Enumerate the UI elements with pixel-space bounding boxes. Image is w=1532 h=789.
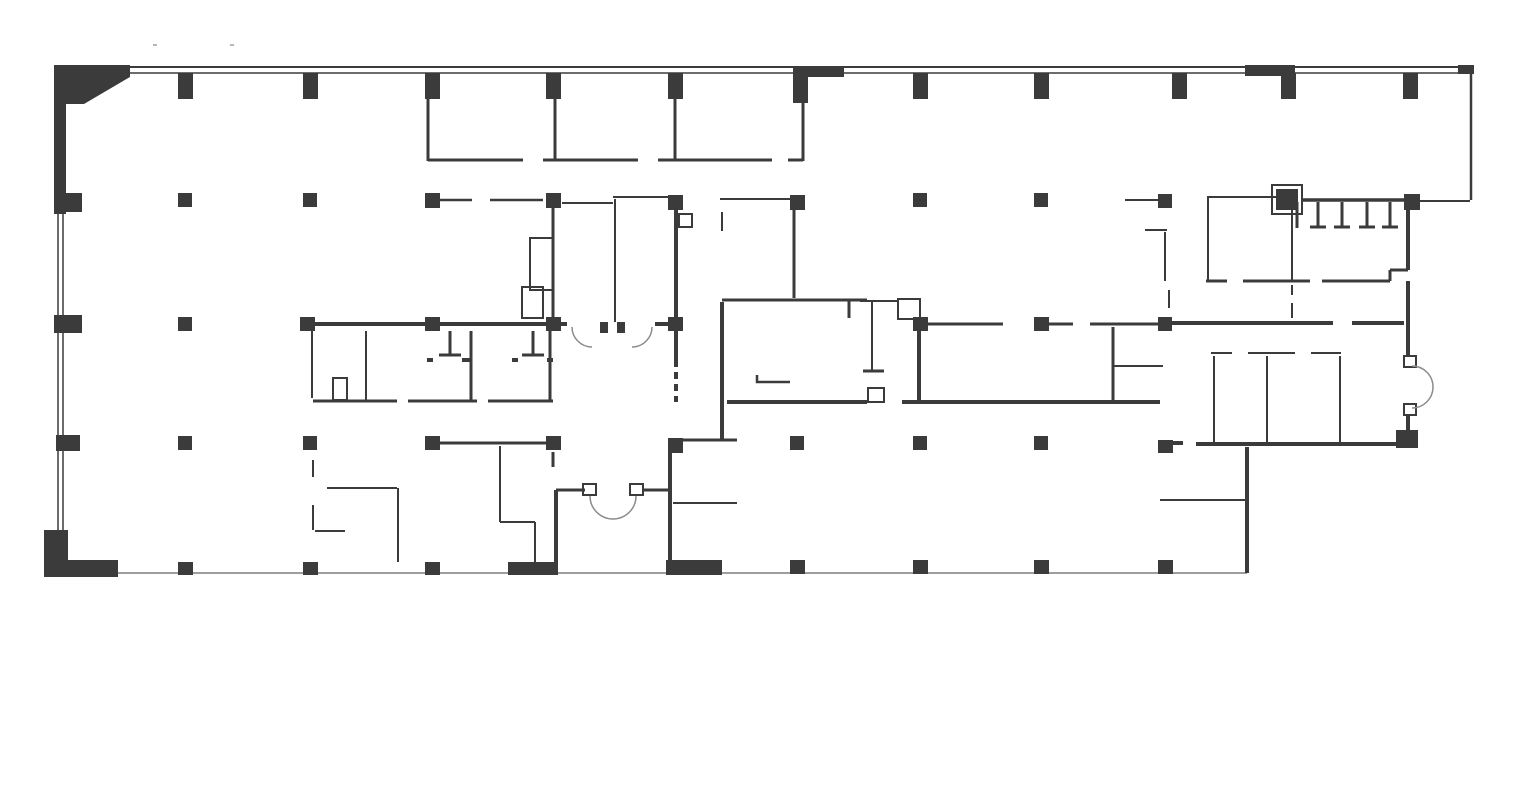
structural-column	[793, 66, 808, 103]
fixture-outline-box	[522, 287, 543, 318]
structural-column	[546, 317, 561, 331]
floor-plan-svg	[0, 0, 1532, 789]
structural-column	[425, 193, 440, 208]
fixture-outline-box	[898, 299, 920, 319]
thick-wall-block	[55, 560, 118, 577]
fixture-path	[757, 375, 790, 382]
door-swing-arc	[613, 496, 636, 519]
walls-layer	[58, 66, 1471, 573]
doors-layer	[572, 327, 1433, 519]
light-lines-layer	[118, 45, 1247, 573]
fixture-outline-box	[530, 238, 553, 290]
structural-column	[425, 562, 440, 575]
structural-column	[1158, 560, 1173, 574]
structural-column	[178, 73, 193, 99]
structural-column	[178, 562, 193, 575]
structural-column	[303, 436, 317, 450]
structural-column	[303, 562, 318, 575]
thick-wall-block	[1458, 65, 1474, 74]
structural-column	[913, 193, 927, 207]
structural-column	[546, 193, 561, 208]
structural-column	[178, 436, 192, 450]
structural-column	[425, 317, 440, 331]
structural-column	[1034, 73, 1049, 99]
structural-column	[913, 73, 928, 99]
door-swing-arc	[1412, 366, 1433, 387]
structural-column	[1158, 440, 1173, 453]
structural-column	[668, 317, 683, 331]
structural-column	[303, 193, 317, 207]
structural-column	[425, 436, 440, 450]
structural-column	[1158, 317, 1172, 331]
columns-layer	[54, 66, 1420, 575]
thick-wall-block	[1396, 430, 1418, 448]
fixture-outline-box	[630, 484, 643, 495]
fixture-outline-box	[1404, 404, 1416, 415]
fixtures-layer	[757, 375, 790, 382]
structural-column	[54, 193, 82, 212]
fixture-outline-box	[333, 378, 347, 400]
outlines-layer	[333, 185, 1416, 495]
door-swing-arc	[590, 496, 613, 519]
structural-column	[1403, 73, 1418, 99]
floor-plan-canvas	[0, 0, 1532, 789]
structural-column	[1172, 73, 1187, 99]
structural-column	[790, 560, 805, 574]
structural-column	[56, 435, 80, 451]
structural-column	[668, 438, 683, 453]
structural-column	[425, 73, 440, 99]
structural-column	[303, 73, 318, 99]
structural-column	[790, 436, 804, 450]
structural-column	[178, 317, 192, 331]
structural-column	[1034, 193, 1048, 207]
door-swing-arc	[632, 327, 652, 347]
structural-column	[913, 436, 927, 450]
thick-wall-block	[666, 560, 722, 575]
thick-wall-block	[508, 562, 558, 575]
structural-column	[546, 73, 561, 99]
structural-column	[1404, 194, 1420, 210]
structural-column	[913, 560, 928, 574]
structural-column	[1276, 189, 1298, 210]
structural-column	[1034, 317, 1049, 331]
structural-column	[1281, 73, 1296, 99]
structural-column	[1034, 436, 1048, 450]
structural-column	[178, 193, 192, 207]
structural-column	[668, 73, 683, 99]
structural-column	[300, 317, 315, 331]
structural-column	[546, 436, 561, 450]
door-swing-arc	[572, 327, 592, 347]
structural-column	[790, 195, 805, 210]
structural-column	[54, 315, 82, 333]
structural-column	[1158, 194, 1172, 208]
fixture-outline-box	[868, 388, 884, 402]
fixture-outline-box	[679, 214, 692, 227]
corner-wall-block	[54, 65, 130, 214]
structural-column	[668, 195, 683, 210]
structural-column	[1034, 560, 1049, 574]
thick-wall-block	[600, 322, 608, 333]
thick-wall-block	[806, 66, 844, 77]
thick-wall-block	[617, 322, 625, 333]
